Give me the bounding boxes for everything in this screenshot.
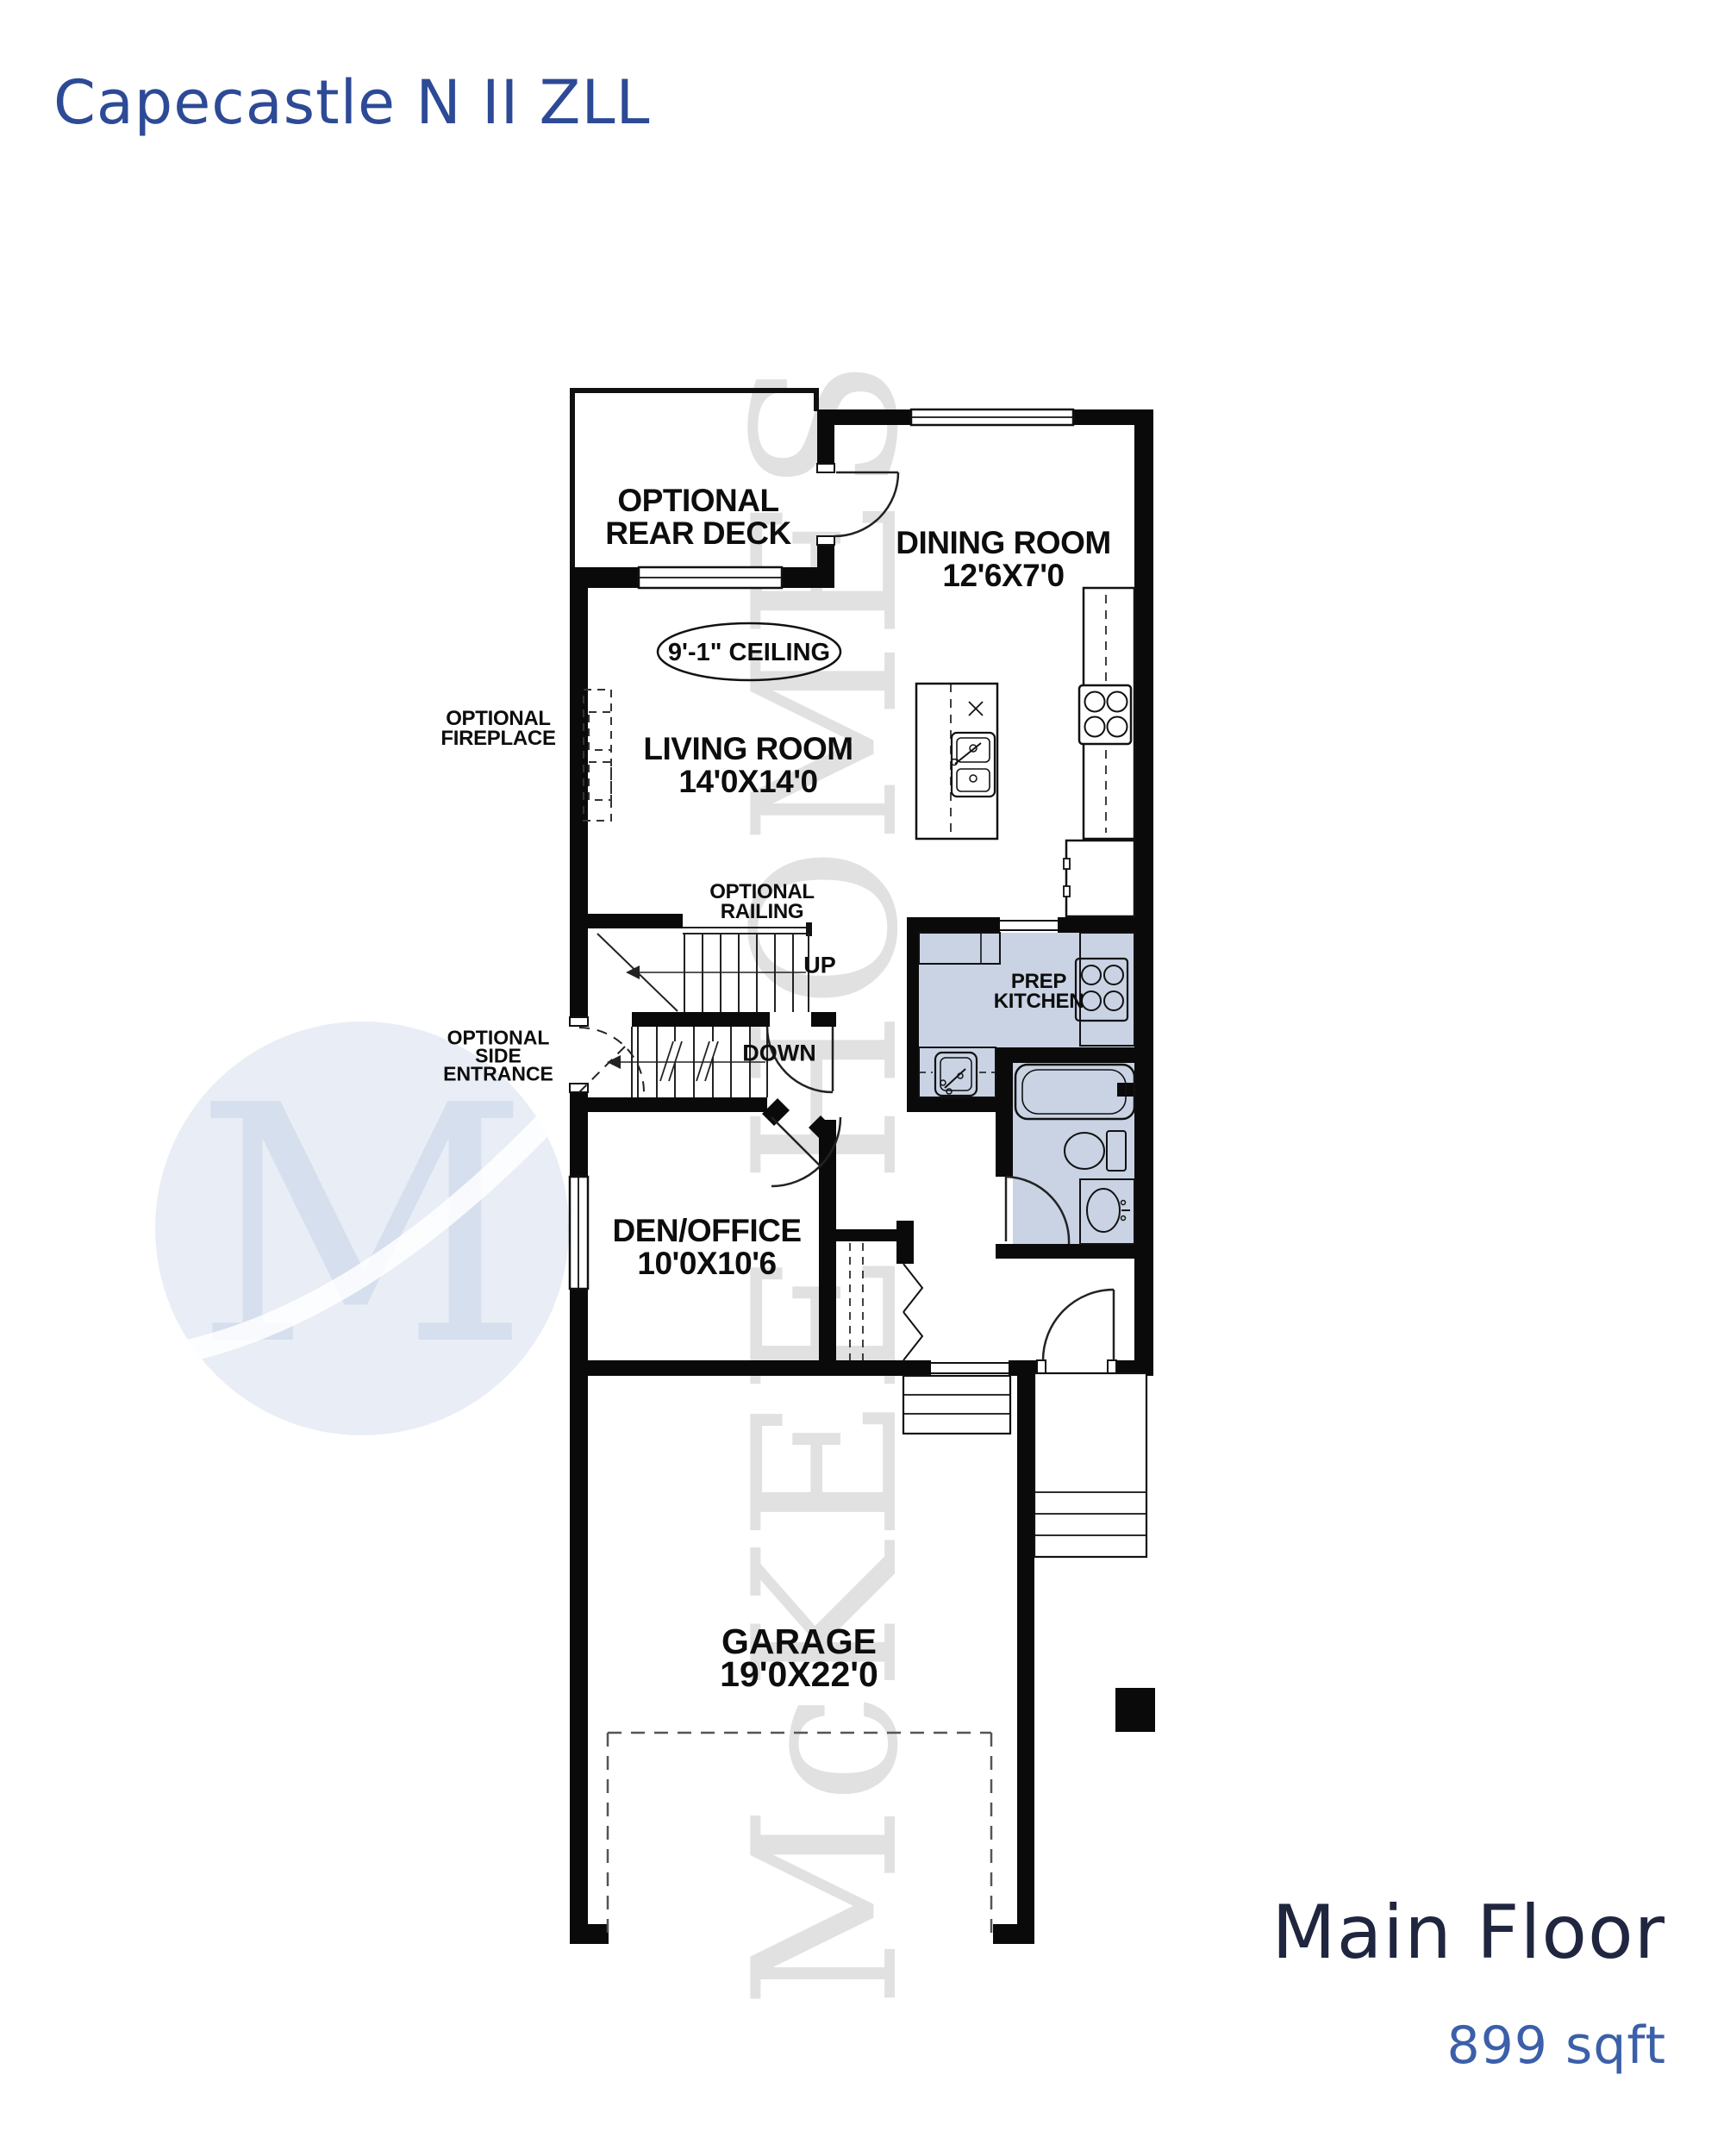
label-optional-fireplace: OPTIONAL FIREPLACE — [440, 709, 555, 748]
page-title: Capecastle N II ZLL — [53, 67, 650, 138]
label-garage: GARAGE 19'0X22'0 — [720, 1625, 878, 1690]
label-stairs-up: UP — [803, 954, 836, 978]
garage-door-outline — [608, 1733, 991, 1941]
staircase — [597, 922, 812, 1097]
label-optional-railing: OPTIONAL RAILING — [709, 882, 815, 922]
label-living-room: LIVING ROOM 14'0X14'0 — [643, 733, 853, 798]
label-ceiling-height: 9'-1" CEILING — [668, 640, 830, 666]
kitchen-fixtures — [916, 588, 1134, 916]
label-rear-deck: OPTIONAL REAR DECK — [605, 484, 790, 550]
label-stairs-down: DOWN — [742, 1042, 815, 1066]
floor-area: 899 sqft — [1446, 2015, 1666, 2076]
floor-plan-drawing — [0, 0, 1724, 2156]
label-optional-side-entrance: OPTIONAL SIDE ENTRANCE — [443, 1029, 553, 1084]
label-prep-kitchen: PREP KITCHEN — [994, 972, 1084, 1011]
label-dining-room: DINING ROOM 12'6X7'0 — [896, 527, 1110, 592]
label-den-office: DEN/OFFICE 10'0X10'6 — [612, 1215, 801, 1280]
floorplan-page: M McKEE HOMES — [0, 0, 1724, 2156]
floor-name: Main Floor — [1271, 1890, 1665, 1976]
